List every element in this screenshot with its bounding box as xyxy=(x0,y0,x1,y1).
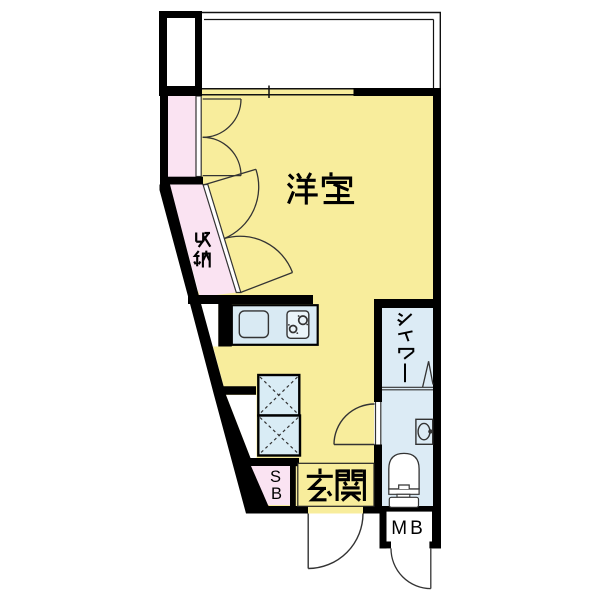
svg-text:S: S xyxy=(270,468,281,486)
svg-text:B: B xyxy=(271,485,282,503)
svg-text:MB: MB xyxy=(391,518,426,539)
